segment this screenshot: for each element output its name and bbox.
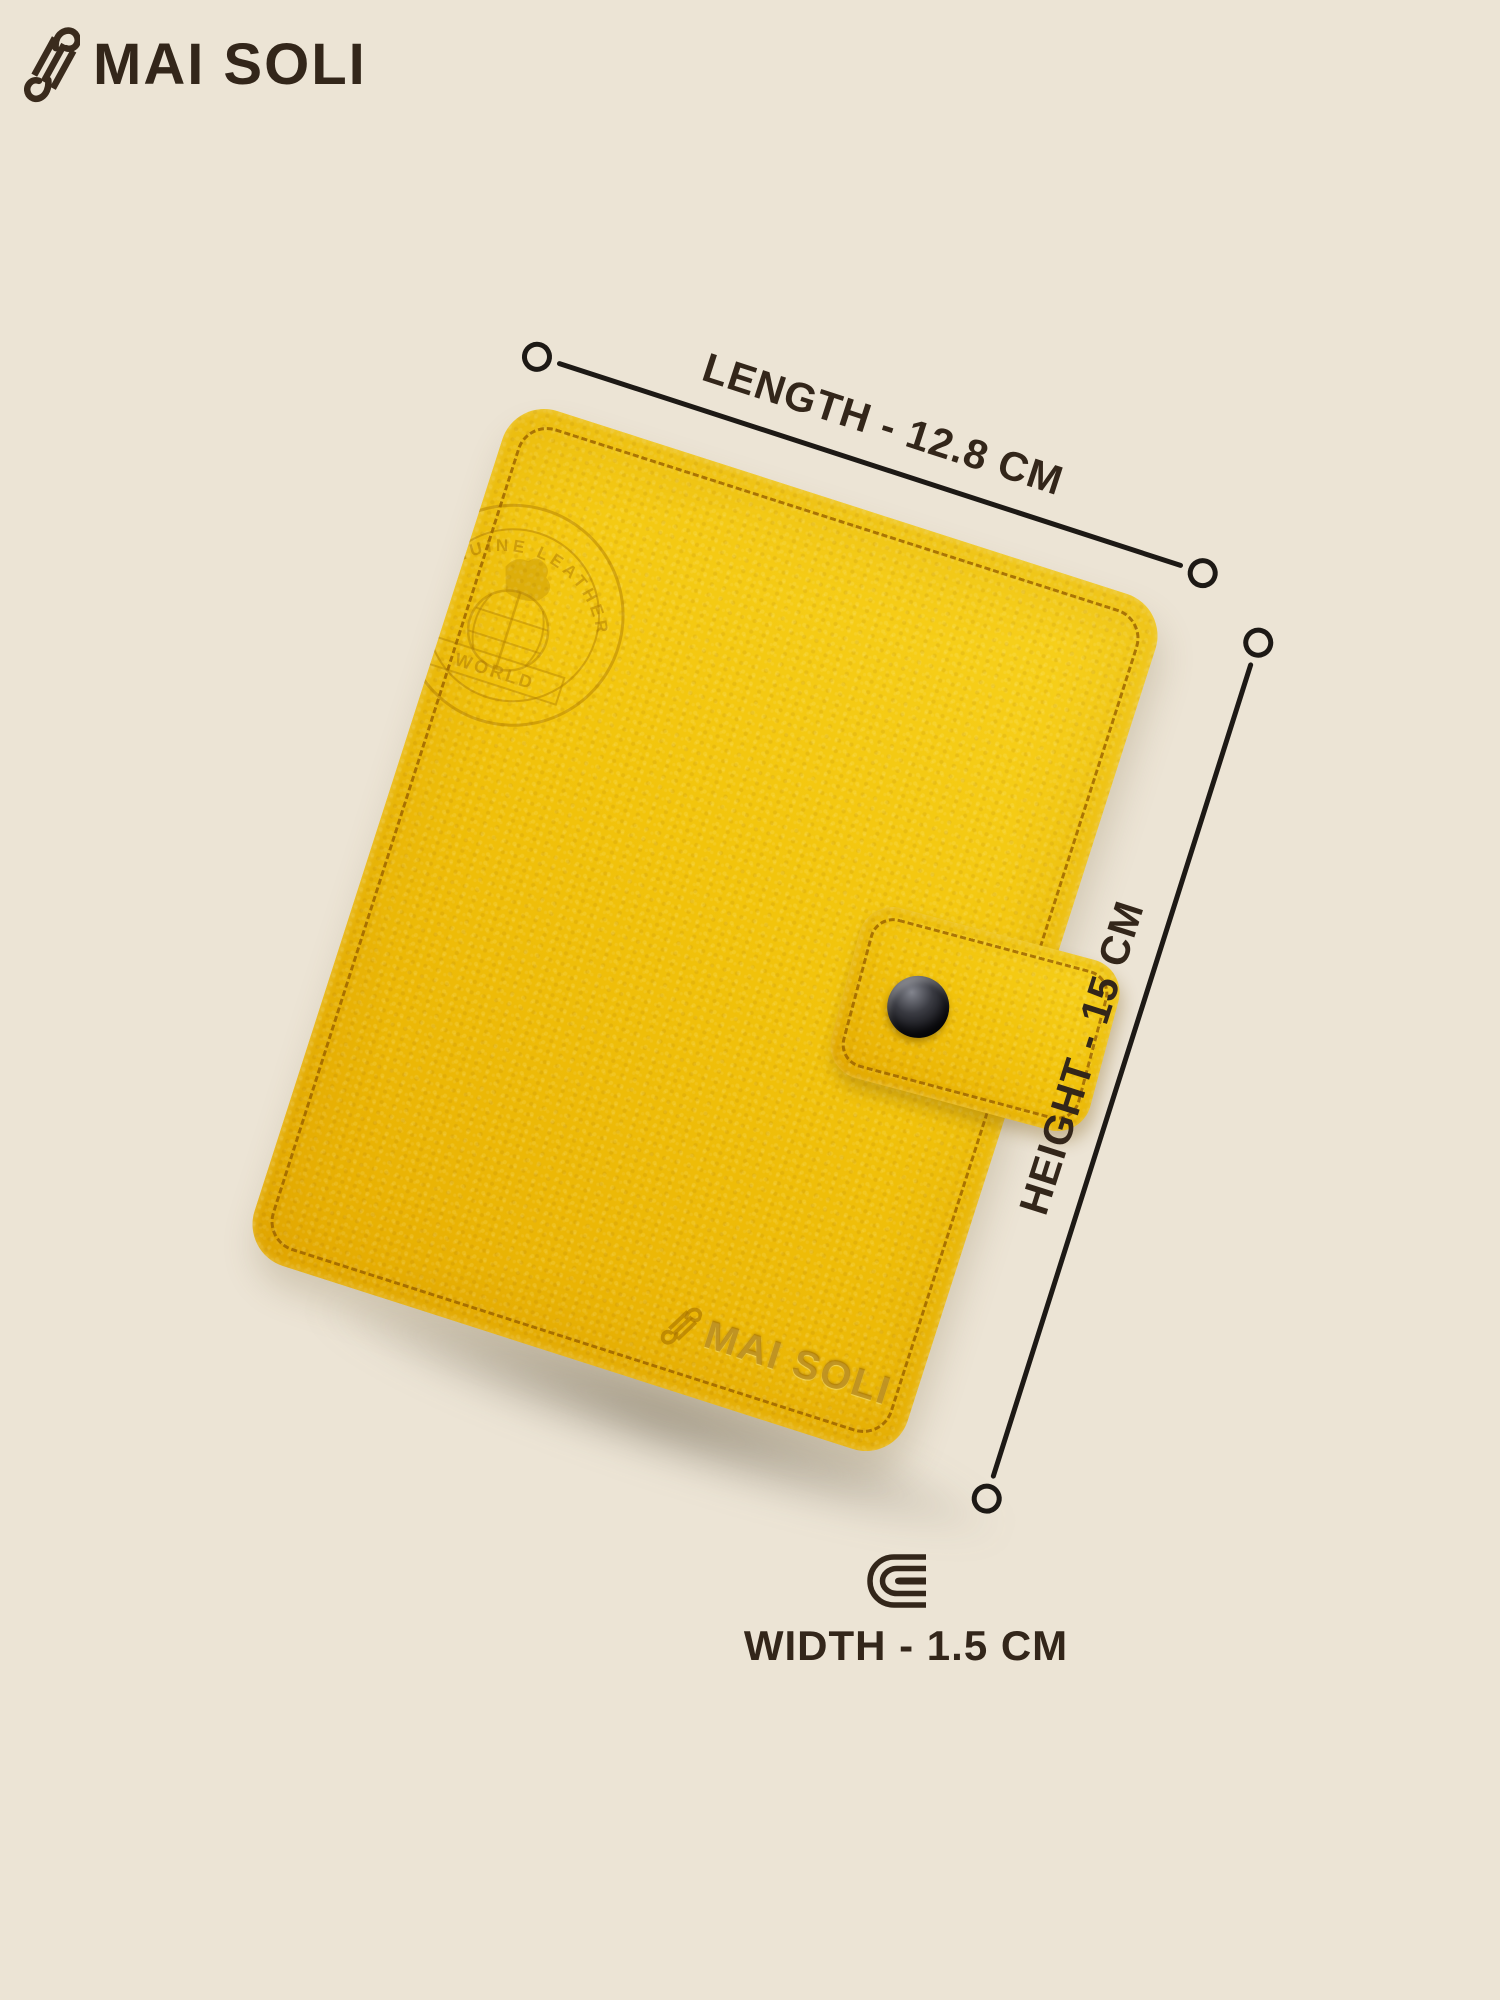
brand-logo: MAI SOLI <box>24 22 367 106</box>
brand-monogram-icon <box>24 22 80 106</box>
width-profile-icon <box>866 1553 928 1609</box>
product-dimension-image: MAI SOLI GENUINE LEATHER WO <box>0 0 1500 2000</box>
dimension-endpoint-dot <box>518 337 556 375</box>
wallet-edge-stitching <box>263 419 1148 1441</box>
dimension-endpoint-dot <box>1184 554 1222 592</box>
width-label: WIDTH - 1.5 CM <box>744 1622 1068 1670</box>
dimension-endpoint-dot <box>1239 624 1277 662</box>
brand-name: MAI SOLI <box>93 31 367 98</box>
